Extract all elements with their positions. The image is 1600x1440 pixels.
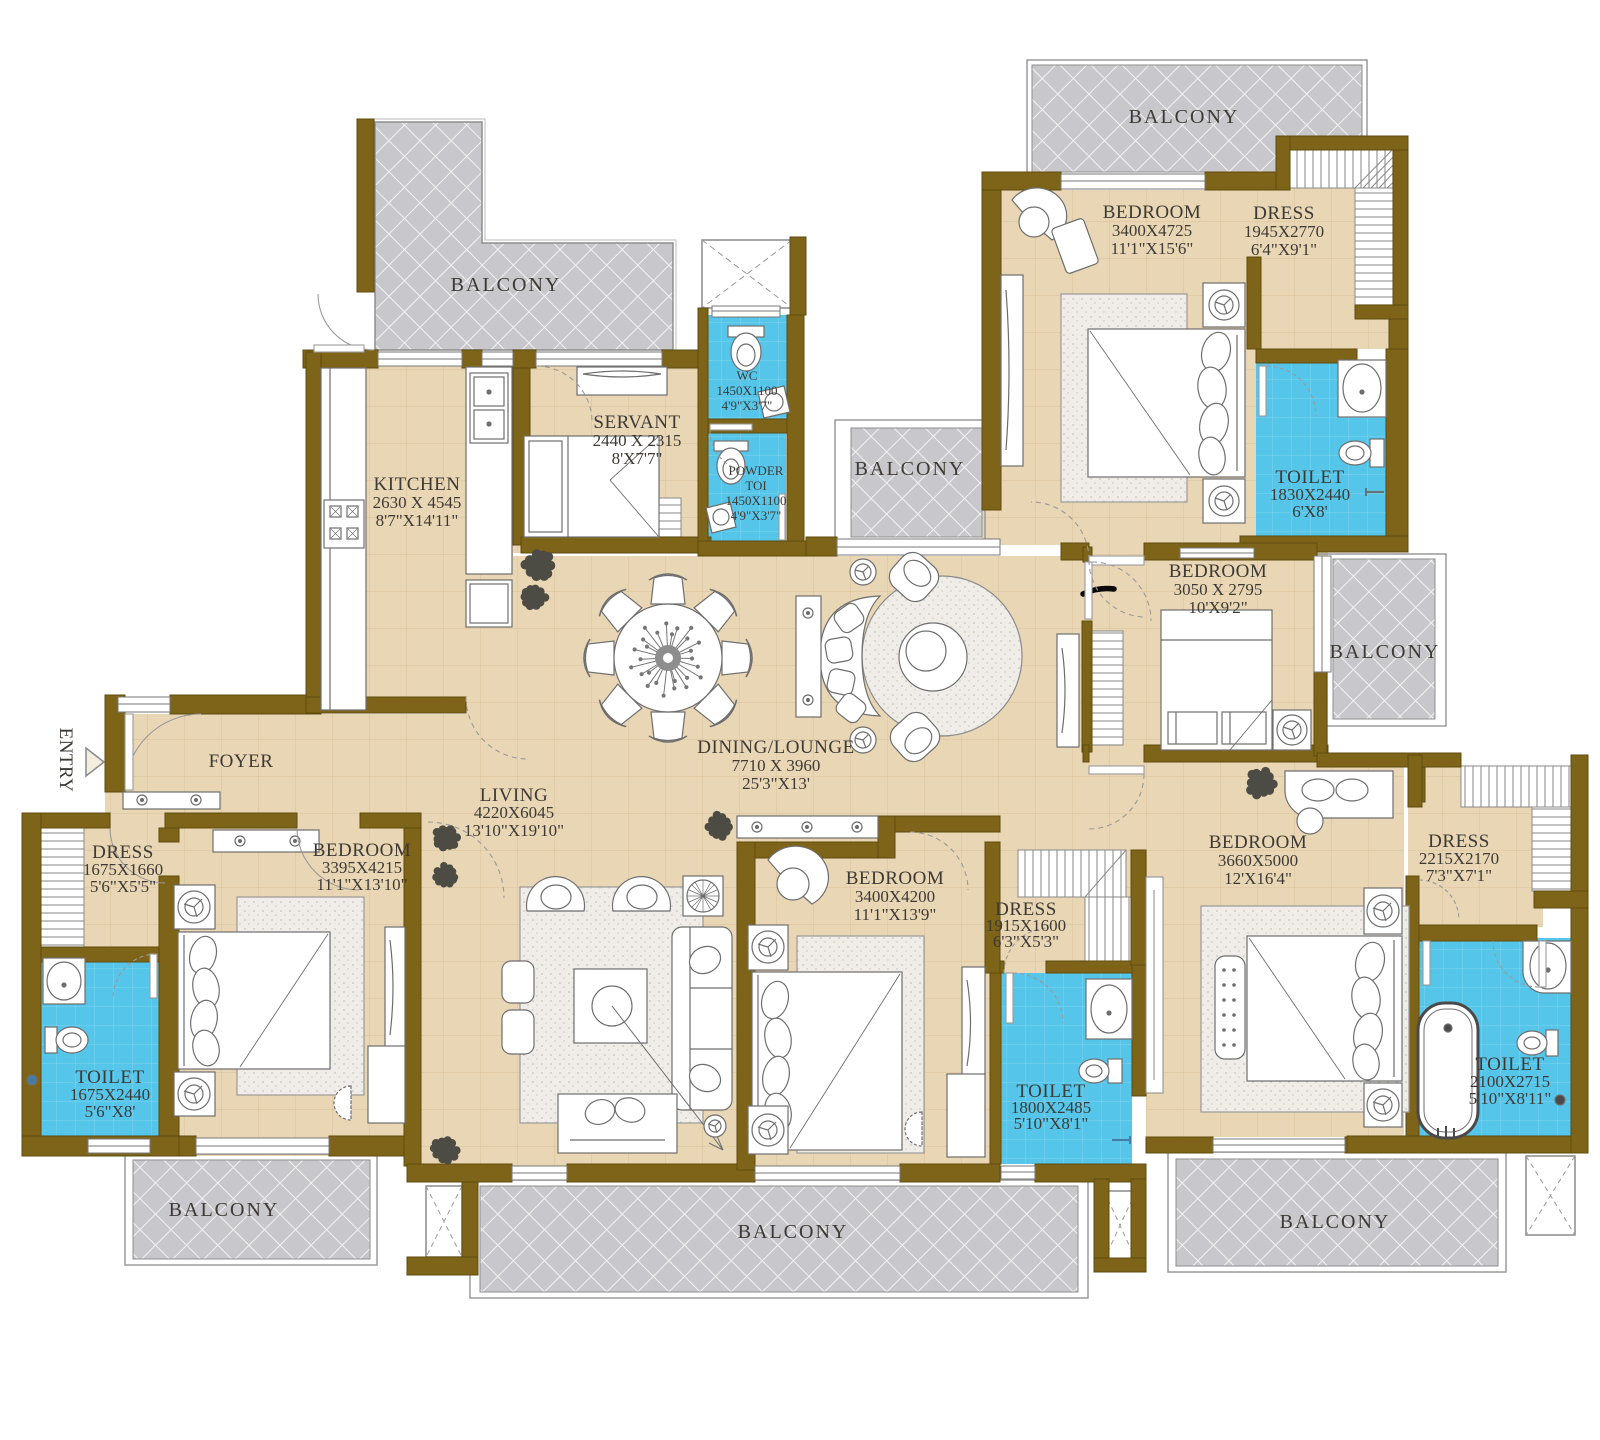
svg-text:11'1"X15'6": 11'1"X15'6" [1111,239,1194,258]
svg-text:6'X8': 6'X8' [1292,502,1327,521]
svg-text:8'X7'7": 8'X7'7" [612,449,663,468]
svg-text:2630 X 4545: 2630 X 4545 [373,493,462,512]
svg-text:6'3"X5'3": 6'3"X5'3" [993,932,1059,951]
svg-text:3660X5000: 3660X5000 [1218,851,1298,870]
svg-text:25'3"X13': 25'3"X13' [742,774,810,793]
svg-text:BALCONY: BALCONY [1129,106,1240,128]
svg-text:POWDER: POWDER [729,463,784,478]
svg-text:1450X1100: 1450X1100 [726,493,787,508]
svg-text:BALCONY: BALCONY [169,1199,280,1221]
svg-text:3050 X 2795: 3050 X 2795 [1174,580,1263,599]
svg-text:1450X1100: 1450X1100 [717,383,778,398]
svg-text:4220X6045: 4220X6045 [474,803,554,822]
svg-text:BALCONY: BALCONY [1280,1211,1391,1233]
svg-text:6'4"X9'1": 6'4"X9'1" [1251,240,1317,259]
svg-text:BALCONY: BALCONY [1330,641,1441,663]
svg-text:BALCONY: BALCONY [451,274,562,296]
svg-text:3400X4725: 3400X4725 [1112,221,1192,240]
svg-text:BEDROOM: BEDROOM [1103,202,1202,223]
svg-text:3400X4200: 3400X4200 [855,887,935,906]
svg-text:5'6"X5'5": 5'6"X5'5" [90,877,156,896]
svg-text:KITCHEN: KITCHEN [374,474,461,495]
svg-text:BEDROOM: BEDROOM [1169,561,1268,582]
svg-text:WC: WC [737,368,758,383]
svg-text:BALCONY: BALCONY [738,1221,849,1243]
svg-text:7'3"X7'1": 7'3"X7'1" [1426,866,1492,885]
svg-text:DRESS: DRESS [1253,203,1315,224]
svg-text:11'1"X13'10": 11'1"X13'10" [316,875,407,894]
svg-text:BALCONY: BALCONY [855,458,966,480]
svg-text:BEDROOM: BEDROOM [846,868,945,889]
svg-text:BEDROOM: BEDROOM [1209,832,1308,853]
svg-text:FOYER: FOYER [209,751,274,772]
svg-text:5'10"X8'1": 5'10"X8'1" [1014,1114,1089,1133]
svg-text:4'9"X3'7": 4'9"X3'7" [722,398,773,413]
svg-text:4'9"X3'7": 4'9"X3'7" [731,508,782,523]
svg-text:11'1"X13'9": 11'1"X13'9" [854,905,937,924]
svg-text:12'X16'4": 12'X16'4" [1224,869,1292,888]
svg-text:8'7"X14'11": 8'7"X14'11" [376,511,459,530]
svg-text:ENTRY: ENTRY [55,728,76,793]
svg-text:10'X9'2": 10'X9'2" [1188,598,1247,617]
svg-text:1945X2770: 1945X2770 [1244,222,1324,241]
svg-text:13'10"X19'10": 13'10"X19'10" [464,821,564,840]
svg-text:5'6"X8': 5'6"X8' [85,1102,136,1121]
svg-text:7710 X 3960: 7710 X 3960 [732,756,821,775]
svg-text:2440 X 2315: 2440 X 2315 [593,431,682,450]
svg-text:SERVANT: SERVANT [593,412,680,433]
svg-text:5'10"X8'11": 5'10"X8'11" [1469,1089,1552,1108]
svg-text:DINING/LOUNGE: DINING/LOUNGE [697,737,854,758]
svg-text:TOI: TOI [745,478,766,493]
